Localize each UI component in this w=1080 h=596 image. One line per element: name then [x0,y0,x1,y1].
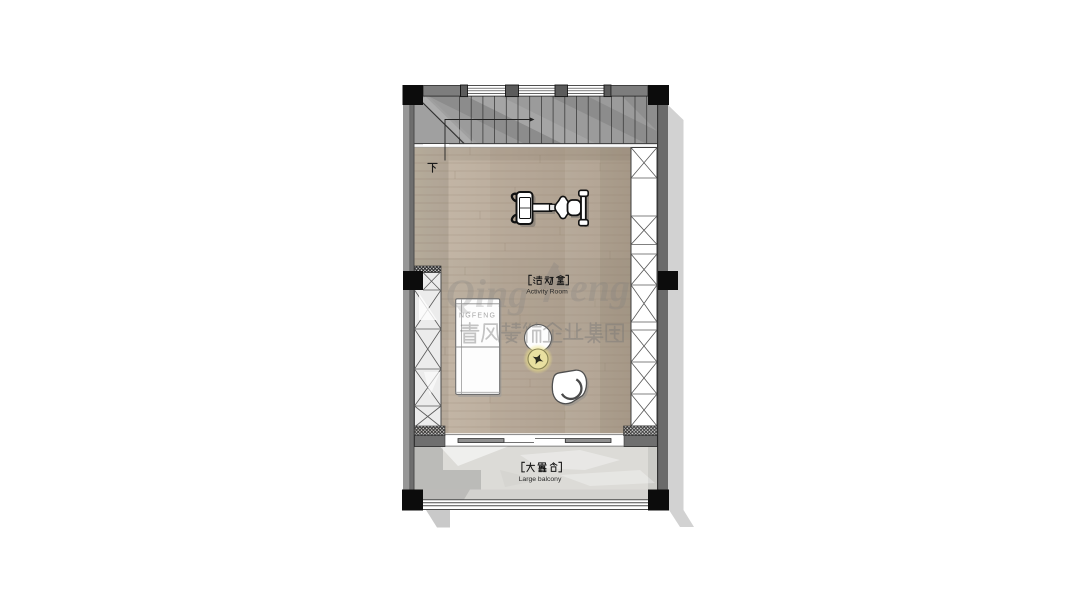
svg-text:Large balcony: Large balcony [519,476,562,483]
svg-text:Activity Room: Activity Room [526,289,568,296]
svg-text:Qing: Qing [446,271,528,316]
svg-text:eng: eng [570,265,630,310]
svg-text:NGFENG: NGFENG [459,313,496,320]
